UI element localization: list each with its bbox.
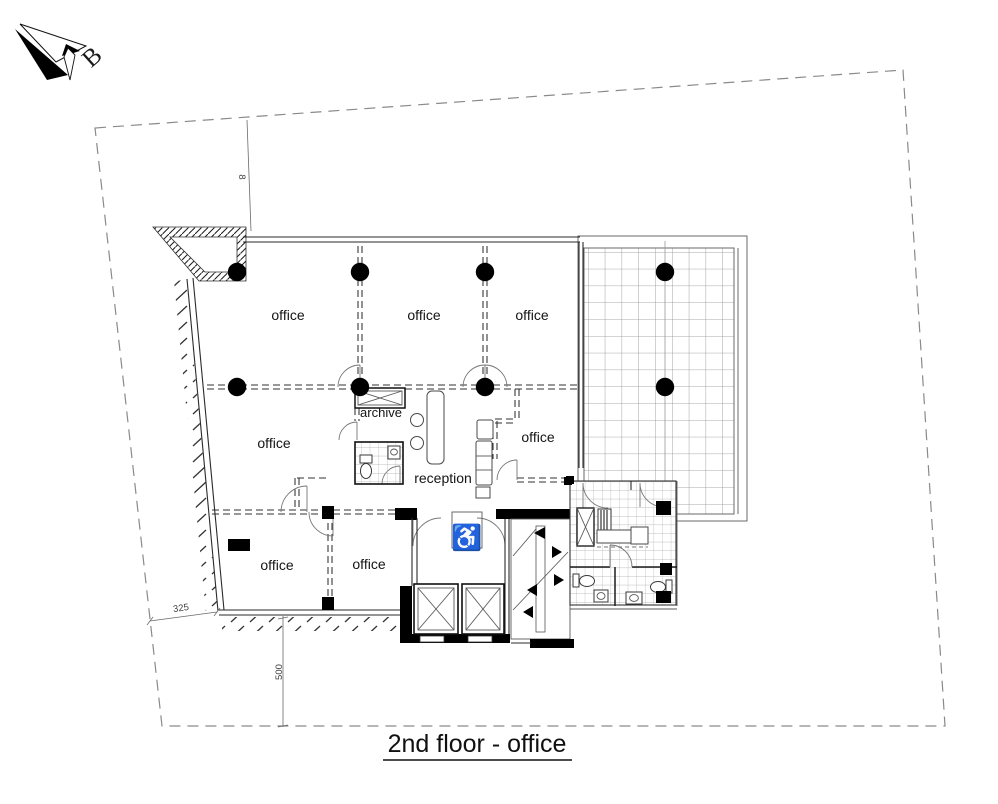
column xyxy=(351,378,369,396)
bath-column-1 xyxy=(656,501,671,515)
stairs-top-wall xyxy=(496,509,575,519)
bath-column-2 xyxy=(660,563,672,575)
room-label-office-top-left: office xyxy=(271,307,304,323)
wheelchair-icon: ♿ xyxy=(451,523,482,552)
floor-plan-drawing: B xyxy=(0,0,998,804)
furniture xyxy=(228,388,574,610)
reception-chair-1 xyxy=(411,414,424,427)
room-label-office-middle-right: office xyxy=(521,429,554,445)
left-wall-hatch-ticks xyxy=(174,280,218,613)
room-label-archive: archive xyxy=(360,405,402,420)
elevator-door-slot-1 xyxy=(420,636,444,642)
dim-label-diagonal: 325 xyxy=(172,602,189,615)
column xyxy=(351,263,369,281)
core-jamb-left xyxy=(395,508,417,520)
door-mid-right-office xyxy=(497,460,517,480)
elevator-door-slot-2 xyxy=(468,636,492,642)
column xyxy=(228,263,246,281)
floor-plan-page: B xyxy=(0,0,998,804)
partitions xyxy=(207,246,580,608)
wc-middle xyxy=(355,442,403,484)
sink-1 xyxy=(594,590,608,602)
dim-label-top: 8 xyxy=(236,174,247,179)
elevator-wall-bottom xyxy=(400,634,510,643)
room-label-office-bottom-middle: office xyxy=(352,556,385,572)
radiator-block xyxy=(228,539,250,551)
column xyxy=(476,263,494,281)
dim-label-left: 500 xyxy=(274,664,285,680)
room-label-office-top-middle: office xyxy=(407,307,440,323)
room-label-reception: reception xyxy=(414,470,472,486)
stairs-bottom-wall xyxy=(530,639,574,648)
door-bottom-left-office xyxy=(281,486,307,512)
jamb-block-1 xyxy=(322,506,334,519)
reception-chair-2 xyxy=(411,437,424,450)
core: ♿ xyxy=(395,508,575,648)
sink-2 xyxy=(626,592,642,604)
waiting-sofa xyxy=(476,420,493,498)
jamb-block-2 xyxy=(322,597,334,610)
bathrooms xyxy=(564,477,677,609)
title-block: 2nd floor - office xyxy=(383,730,572,760)
room-label-office-middle-left: office xyxy=(257,435,290,451)
jamb-block-3 xyxy=(566,476,574,484)
column xyxy=(476,378,494,396)
drawing-title: 2nd floor - office xyxy=(388,730,567,758)
bath-column-3 xyxy=(656,591,671,603)
service-elevator xyxy=(577,508,594,546)
door-archive xyxy=(339,422,357,440)
column xyxy=(656,263,674,281)
elevator-car-2 xyxy=(462,584,504,634)
dimensions: 8 325 500 xyxy=(147,120,288,727)
bottom-wall-hatch-ticks xyxy=(222,617,408,631)
stairs xyxy=(511,519,574,648)
column xyxy=(228,378,246,396)
room-label-office-top-right: office xyxy=(515,307,548,323)
toilet-1 xyxy=(573,574,595,587)
column xyxy=(656,378,674,396)
elevator-car-1 xyxy=(414,584,458,634)
room-labels: office office office office archive rece… xyxy=(257,307,554,573)
reception-desk xyxy=(427,391,444,464)
north-arrow: B xyxy=(15,24,108,80)
room-label-office-bottom-left: office xyxy=(260,557,293,573)
